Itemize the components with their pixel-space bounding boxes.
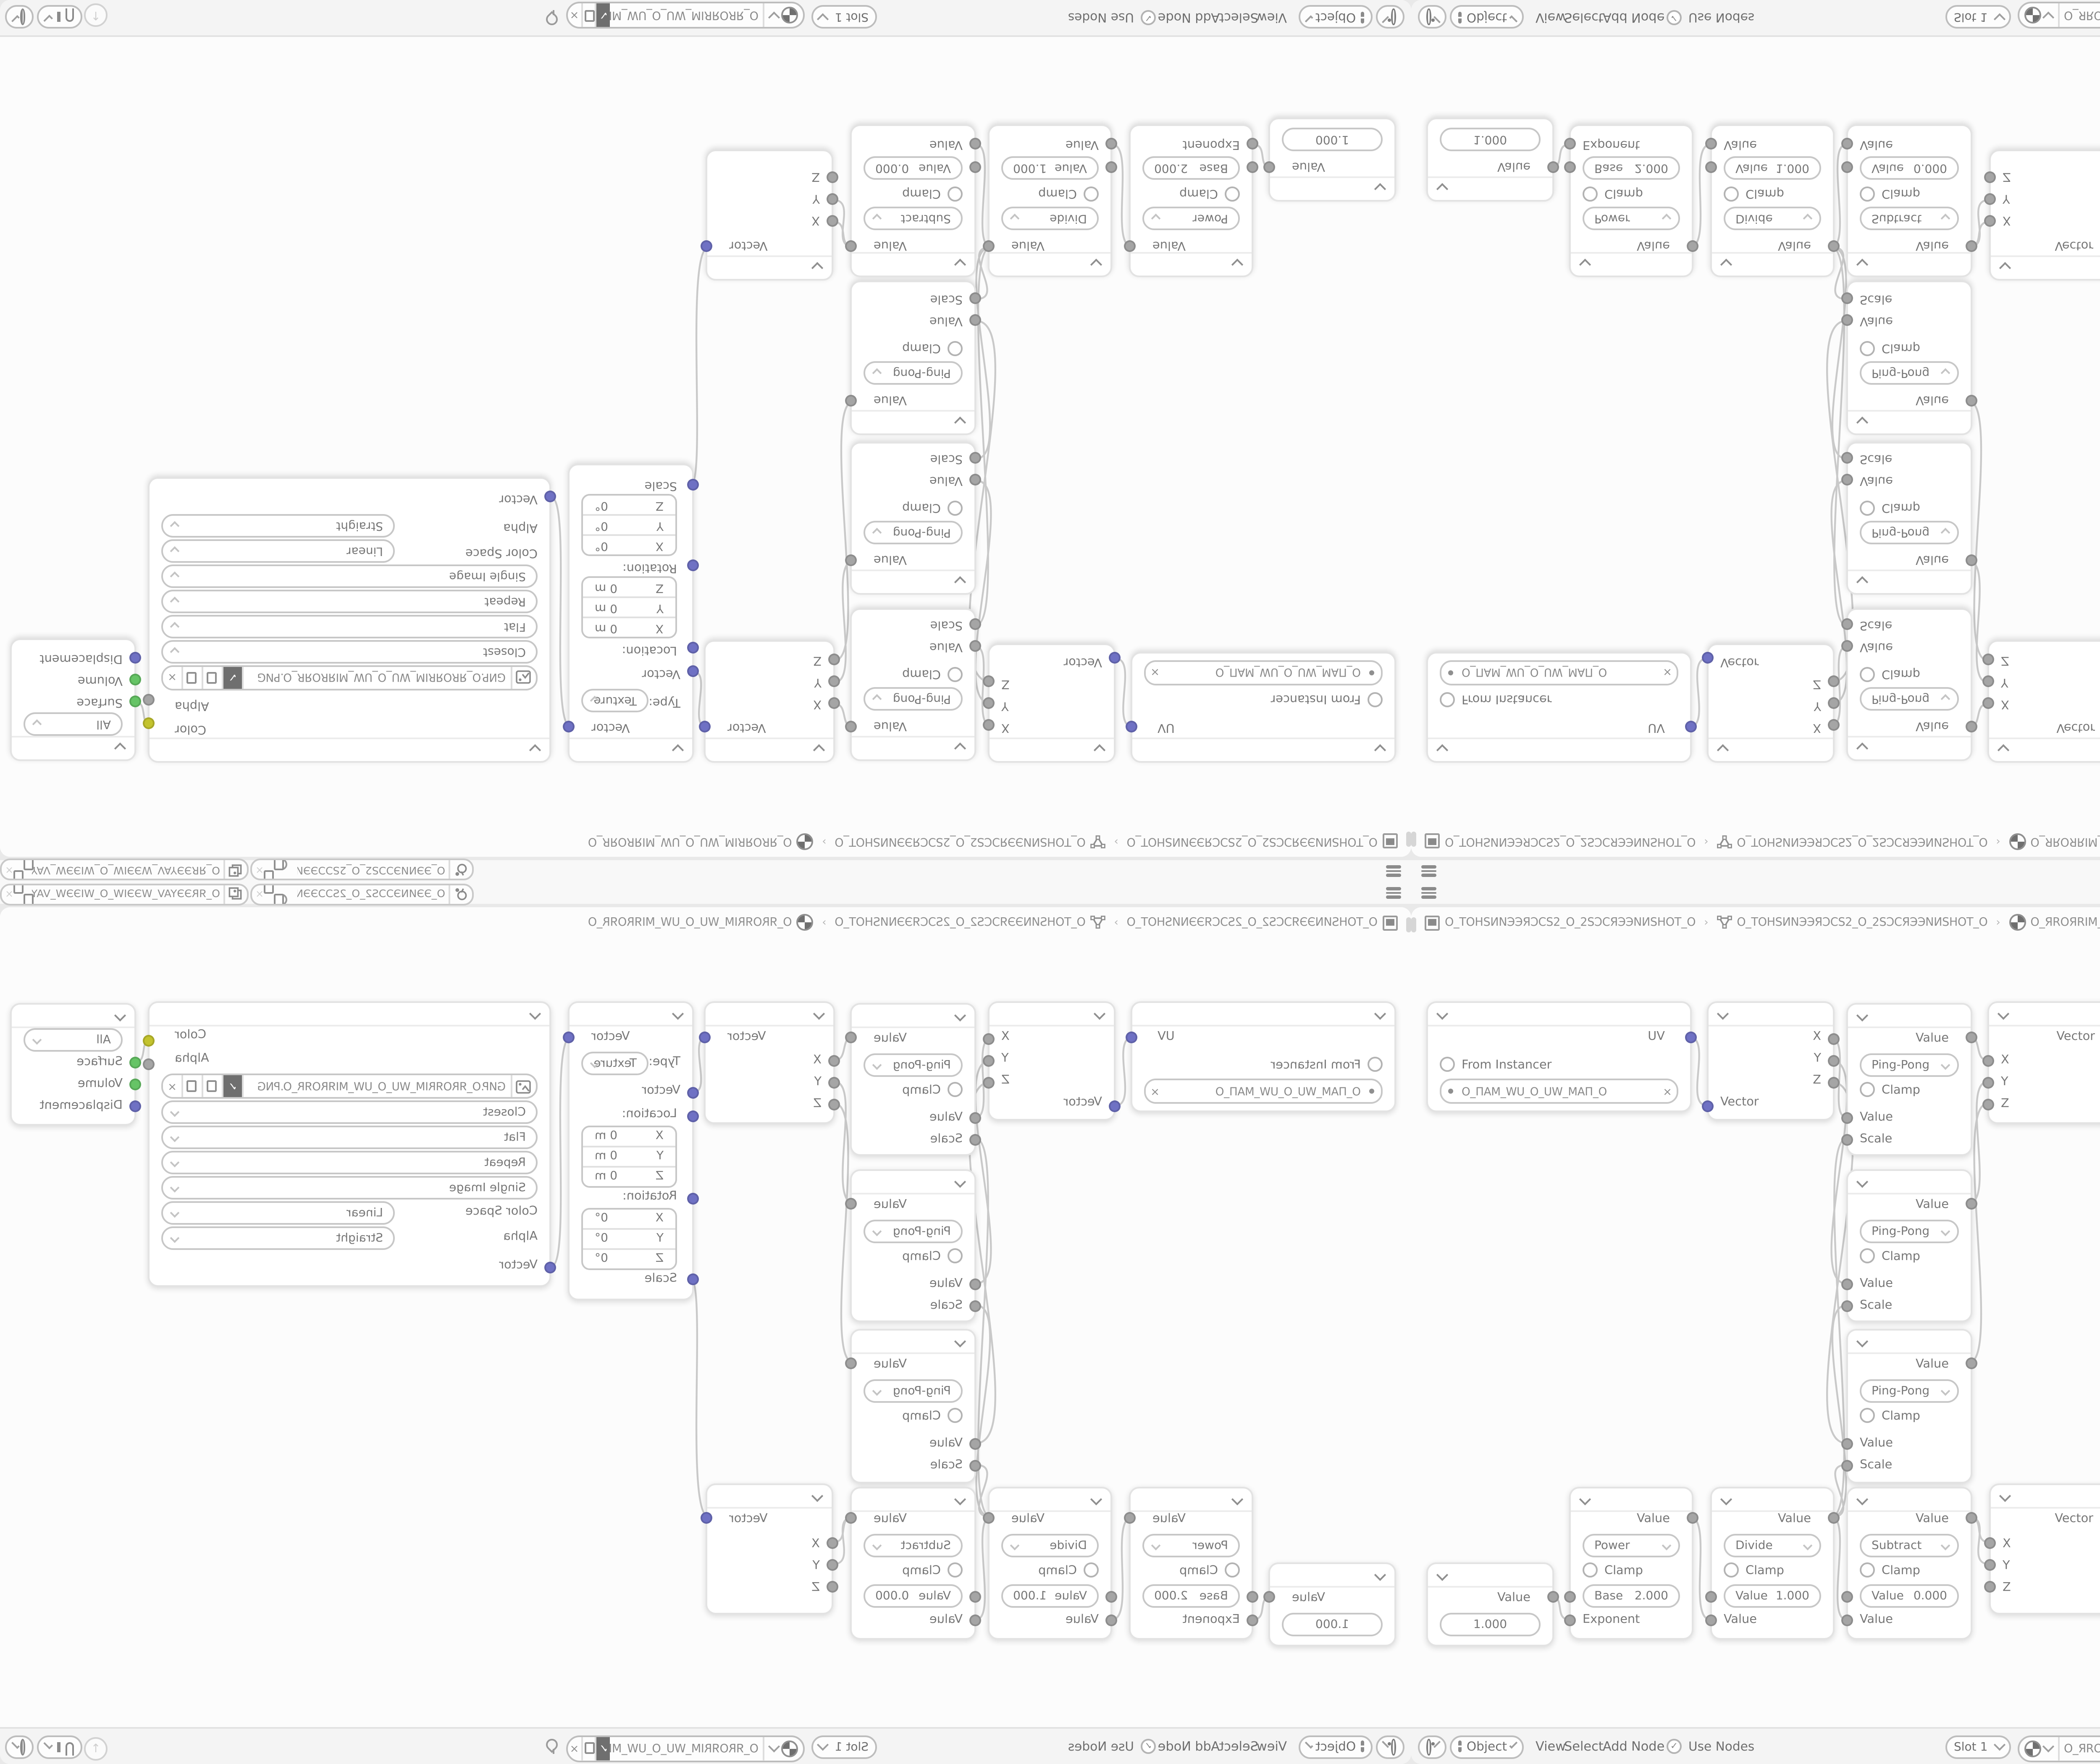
node-image-texture[interactable]: Color Alpha GИP.O_ЯROЯRIM_WU_O_UW_MIЯROЯ… — [148, 477, 551, 763]
socket-value1-in[interactable] — [1842, 1591, 1853, 1603]
unlink-icon[interactable]: × — [163, 1075, 183, 1097]
up-arrow-icon[interactable]: ↑ — [84, 4, 108, 28]
collapse-icon[interactable] — [813, 745, 825, 757]
collapse-icon[interactable] — [1717, 745, 1729, 757]
location-fields[interactable]: X0 m Y0 m Z0 m — [581, 576, 677, 638]
viewlayer-name[interactable]: O_ЯRЭЭYAV_WЭЭIW_O_WIЭЭW_VAYЭЭRЯ_O — [32, 888, 223, 900]
socket-x-in[interactable] — [826, 215, 838, 227]
socket-value-out[interactable] — [1686, 240, 1698, 252]
collapse-icon[interactable] — [811, 263, 823, 275]
socket-value1-in[interactable] — [1105, 161, 1117, 173]
operation-dropdown[interactable]: Power — [1583, 1534, 1680, 1557]
breadcrumb-material[interactable]: O_ЯROЯRIM_WU_O_UW_MIЯROЯR_O — [2030, 835, 2100, 848]
use-nodes-checkbox[interactable]: ✓ Use Nodes — [1667, 8, 1754, 27]
node-separate-xyz[interactable]: X Y Z Vector — [988, 643, 1116, 763]
clamp-checkbox[interactable]: Clamp — [1179, 185, 1240, 203]
location-z-field[interactable]: Z0 m — [583, 578, 675, 598]
remove-icon[interactable]: × — [1658, 1080, 1677, 1102]
collapse-icon[interactable] — [813, 1007, 825, 1019]
node-header[interactable] — [150, 738, 549, 761]
collapse-icon[interactable] — [1717, 1007, 1729, 1019]
socket-z-in[interactable] — [828, 654, 840, 665]
material-browse-button[interactable] — [764, 4, 803, 28]
socket-displacement-in[interactable] — [129, 652, 141, 664]
node-header[interactable] — [852, 1171, 974, 1194]
location-y-field[interactable]: Y0 m — [583, 598, 675, 618]
collapse-icon[interactable] — [1856, 743, 1868, 755]
breadcrumb-object[interactable]: O_TOHSИNЭЭЯƆCS2_O_2SƆCЯЭЭNИSHOT_O — [835, 916, 1086, 929]
socket-value2-in[interactable] — [1105, 138, 1117, 150]
collapse-icon[interactable] — [1231, 1493, 1243, 1504]
value-field[interactable]: Value0.000 — [864, 156, 963, 180]
socket-surface-in[interactable] — [129, 696, 141, 707]
socket-x-out[interactable] — [1827, 719, 1839, 731]
remove-icon[interactable]: × — [1146, 662, 1164, 684]
socket-value-out[interactable] — [1827, 1512, 1839, 1524]
type-dropdown[interactable]: Texture — [581, 689, 648, 712]
menu-view[interactable]: View — [1536, 1735, 1566, 1758]
collapse-icon[interactable] — [1374, 745, 1386, 757]
node-value[interactable]: Value 1.000 — [1426, 118, 1554, 202]
socket-value1-in[interactable] — [1706, 161, 1717, 173]
projection-dropdown[interactable]: Flat — [161, 1126, 538, 1149]
socket-z-in[interactable] — [1983, 654, 1995, 665]
socket-value2-in[interactable] — [1706, 138, 1717, 150]
node-header[interactable] — [852, 736, 974, 759]
operation-dropdown[interactable]: Divide — [1001, 1534, 1099, 1557]
collapse-icon[interactable] — [954, 743, 966, 755]
clamp-checkbox[interactable]: Clamp — [1860, 339, 1920, 358]
viewlayer-selector[interactable]: O_ЯRЭЭYAV_WЭЭIW_O_WIЭЭW_VAYЭЭRЯ_O × — [0, 859, 249, 880]
operation-dropdown[interactable]: Ping-Pong — [864, 1220, 963, 1243]
collapse-icon[interactable] — [1094, 745, 1105, 757]
collapse-icon[interactable] — [1094, 1007, 1105, 1019]
node-combine-xyz-bottom[interactable]: Vector X Y Z — [1989, 150, 2100, 281]
shield-icon[interactable]: ✓ — [223, 1075, 244, 1097]
node-math-pingpong-z[interactable]: Value Ping-Pong Clamp Value Scale — [1846, 281, 1972, 435]
node-header[interactable] — [1428, 1003, 1690, 1026]
socket-value-in[interactable] — [1842, 1112, 1853, 1124]
socket-value-out[interactable] — [1965, 1357, 1977, 1369]
socket-base-in[interactable] — [1246, 1591, 1258, 1603]
clamp-checkbox[interactable]: Clamp — [1583, 1561, 1643, 1579]
socket-value2-in[interactable] — [1842, 138, 1853, 150]
operation-dropdown[interactable]: Ping-Pong — [1860, 1053, 1959, 1077]
material-selector[interactable]: O_ЯROЯRIM_WU_O_UW_MIЯROЯR_O ✓ × — [2018, 1735, 2100, 1761]
socket-value1-in[interactable] — [1842, 161, 1853, 173]
socket-value-out[interactable] — [1965, 1198, 1977, 1210]
socket-vector-out[interactable] — [701, 240, 713, 252]
socket-vector-in[interactable] — [544, 1262, 556, 1273]
socket-value-in[interactable] — [1842, 314, 1853, 326]
snapping-controls[interactable] — [37, 6, 82, 29]
socket-y-in[interactable] — [828, 1077, 840, 1089]
socket-vector-out[interactable] — [699, 721, 711, 732]
socket-value-out[interactable] — [983, 240, 995, 252]
collapse-icon[interactable] — [1999, 263, 2011, 275]
copy-icon[interactable] — [203, 1075, 223, 1097]
node-math-divide[interactable]: Value Divide Clamp Value1.000 Value — [1710, 1487, 1835, 1640]
node-header[interactable] — [1848, 252, 1971, 276]
menu-view[interactable]: View — [1257, 6, 1287, 29]
socket-value2-in[interactable] — [969, 1614, 981, 1626]
extension-dropdown[interactable]: Repeat — [161, 590, 538, 613]
socket-value-out[interactable] — [1965, 554, 1977, 566]
operation-dropdown[interactable]: Subtract — [864, 207, 963, 230]
collapsed-menus-icon[interactable] — [1386, 887, 1401, 899]
collapsed-menus-icon[interactable] — [1421, 865, 1436, 877]
socket-scale-in[interactable] — [687, 1273, 698, 1285]
value-field[interactable]: Value1.000 — [1001, 1584, 1099, 1608]
scrollbar-nub[interactable] — [1407, 917, 1411, 932]
socket-value-out[interactable] — [845, 395, 857, 407]
material-selector[interactable]: O_ЯROЯRIM_WU_O_UW_MIЯROЯR_O ✓ × — [566, 1735, 805, 1761]
socket-z-out[interactable] — [1827, 1077, 1839, 1089]
clamp-checkbox[interactable]: Clamp — [902, 1080, 963, 1099]
node-combine-xyz-top[interactable]: Vector X Y Z — [704, 1001, 835, 1124]
node-combine-xyz-bottom[interactable]: Vector X Y Z — [706, 1483, 833, 1614]
clamp-checkbox[interactable]: Clamp — [1724, 1561, 1784, 1579]
socket-surface-in[interactable] — [129, 1057, 141, 1068]
clamp-checkbox[interactable]: Clamp — [1860, 185, 1920, 203]
node-math-pingpong-y[interactable]: Value Ping-Pong Clamp Value Scale — [1846, 1169, 1972, 1322]
node-material-output[interactable]: All Surface Volume Displacement — [10, 1003, 136, 1126]
rotation-z-field[interactable]: Z0° — [583, 1248, 675, 1268]
socket-value-in[interactable] — [969, 474, 981, 486]
material-selector[interactable]: O_ЯROЯRIM_WU_O_UW_MIЯROЯR_O ✓ × — [2018, 3, 2100, 29]
node-canvas[interactable]: O_TOHSИNЭЭЯƆCS2_O_2SƆCЯЭЭNИSHOT_O › O_TO… — [1411, 35, 2100, 857]
collapse-icon[interactable] — [1999, 1489, 2011, 1501]
scrollbar-nub[interactable] — [1407, 832, 1411, 847]
node-separate-xyz[interactable]: X Y Z Vector — [1707, 643, 1835, 763]
value-field[interactable]: 1.000 — [1440, 128, 1541, 151]
material-browse-button[interactable] — [2019, 4, 2059, 28]
interpolation-dropdown[interactable]: Closest — [161, 640, 538, 664]
from-instancer-checkbox[interactable]: From Instancer — [1271, 690, 1383, 709]
node-combine-xyz-top[interactable]: Vector X Y Z — [1987, 1001, 2100, 1124]
node-header[interactable] — [1848, 410, 1971, 433]
socket-z-out[interactable] — [983, 675, 995, 687]
collapse-icon[interactable] — [1374, 1568, 1386, 1580]
operation-dropdown[interactable]: Ping-Pong — [1860, 361, 1959, 385]
socket-vector-in[interactable] — [1702, 1100, 1714, 1112]
socket-value1-in[interactable] — [969, 161, 981, 173]
collapse-icon[interactable] — [954, 1335, 966, 1347]
menu-node[interactable]: Node — [1158, 1735, 1191, 1758]
material-browse-button[interactable] — [2019, 1736, 2059, 1760]
socket-uv-out[interactable] — [1685, 721, 1696, 732]
socket-value-out[interactable] — [1547, 161, 1559, 173]
uv-map-field[interactable]: O_ПAM_WU_O_UW_MAП_O × — [1440, 660, 1678, 685]
socket-value-out[interactable] — [845, 1357, 857, 1369]
socket-value-out[interactable] — [983, 1512, 995, 1524]
breadcrumb-object[interactable]: O_TOHSИNЭЭЯƆCS2_O_2SƆCЯЭЭNИSHOT_O — [835, 835, 1086, 848]
node-header[interactable] — [1270, 176, 1394, 200]
menu-select[interactable]: Select — [1564, 6, 1604, 29]
socket-value-in[interactable] — [969, 1278, 981, 1290]
scene-name[interactable]: O_ЭЭИNЭƆƆS2_O_2SƆƆЭЭN... — [297, 864, 449, 876]
collapsed-menus-icon[interactable] — [1386, 865, 1401, 877]
value-field[interactable]: Value0.000 — [864, 1584, 963, 1608]
operation-dropdown[interactable]: Ping-Pong — [864, 687, 963, 711]
socket-scale-in[interactable] — [969, 292, 981, 304]
menu-view[interactable]: View — [1257, 1735, 1287, 1758]
socket-scale-in[interactable] — [1842, 452, 1853, 464]
slot-dropdown[interactable]: Slot 1 — [1945, 1735, 2011, 1758]
copy-icon[interactable] — [203, 667, 223, 689]
socket-x-out[interactable] — [983, 1033, 995, 1045]
socket-scale-in[interactable] — [969, 1300, 981, 1312]
clamp-checkbox[interactable]: Clamp — [1860, 1247, 1920, 1265]
socket-scale-in[interactable] — [1842, 1460, 1853, 1472]
socket-displacement-in[interactable] — [129, 1100, 141, 1112]
rotation-fields[interactable]: X0° Y0° Z0° — [581, 1208, 677, 1270]
node-header[interactable] — [1712, 252, 1833, 276]
uv-map-field[interactable]: O_ПAM_WU_O_UW_MAП_O × — [1144, 660, 1383, 685]
node-header[interactable] — [1989, 738, 2100, 761]
socket-alpha-out[interactable] — [143, 1058, 155, 1069]
collapse-icon[interactable] — [1998, 745, 2009, 757]
socket-uv-out[interactable] — [1126, 1032, 1138, 1043]
node-math-pingpong-y[interactable]: Value Ping-Pong Clamp Value Scale — [850, 442, 976, 595]
node-header[interactable] — [990, 738, 1114, 761]
socket-value-in[interactable] — [1842, 1278, 1853, 1290]
socket-vector-out[interactable] — [701, 1512, 713, 1524]
socket-vector-in[interactable] — [687, 665, 698, 677]
operation-dropdown[interactable]: Divide — [1724, 207, 1821, 230]
collapse-icon[interactable] — [529, 1007, 541, 1019]
rotation-x-field[interactable]: X0° — [583, 1210, 675, 1228]
from-instancer-checkbox[interactable]: From Instancer — [1440, 690, 1552, 709]
socket-value-in[interactable] — [969, 1112, 981, 1124]
copy-icon[interactable] — [583, 1736, 597, 1760]
node-header[interactable] — [12, 1005, 134, 1028]
socket-x-in[interactable] — [1983, 1055, 1995, 1067]
collapse-icon[interactable] — [114, 743, 126, 755]
socket-scale-in[interactable] — [1842, 618, 1853, 630]
target-dropdown[interactable]: All — [24, 1028, 123, 1052]
socket-value-out[interactable] — [845, 721, 857, 732]
node-uv-map[interactable]: UV From Instancer O_ПAM_WU_O_UW_MAП_O × — [1131, 1001, 1396, 1112]
node-header[interactable] — [150, 1003, 549, 1026]
rotation-z-field[interactable]: Z0° — [583, 496, 675, 516]
collapse-icon[interactable] — [1436, 184, 1448, 196]
color-space-dropdown[interactable]: Linear — [161, 539, 395, 563]
breadcrumb-object[interactable]: O_TOHSИNЭЭЯƆCS2_O_2SƆCЯЭЭNИSHOT_O — [1737, 916, 1987, 929]
socket-rotation-in[interactable] — [687, 1193, 698, 1205]
collapsed-menus-icon[interactable] — [1421, 887, 1436, 899]
socket-volume-in[interactable] — [129, 1079, 141, 1090]
clamp-checkbox[interactable]: Clamp — [902, 1406, 963, 1425]
slot-dropdown[interactable]: Slot 1 — [811, 1735, 877, 1758]
collapse-icon[interactable] — [1090, 1493, 1102, 1504]
clamp-checkbox[interactable]: Clamp — [1860, 1406, 1920, 1425]
node-header[interactable] — [1709, 738, 1833, 761]
operation-dropdown[interactable]: Divide — [1724, 1534, 1821, 1557]
socket-value-out[interactable] — [1264, 1591, 1276, 1603]
socket-z-in[interactable] — [1984, 1581, 1996, 1593]
value-field[interactable]: Value0.000 — [1860, 1584, 1959, 1608]
socket-value1-in[interactable] — [1105, 1591, 1117, 1603]
collapse-icon[interactable] — [954, 1009, 966, 1021]
clamp-checkbox[interactable]: Clamp — [902, 339, 963, 358]
socket-rotation-in[interactable] — [687, 559, 698, 571]
node-header[interactable] — [12, 736, 134, 759]
collapse-icon[interactable] — [1436, 1568, 1448, 1580]
node-header[interactable] — [1991, 1485, 2100, 1509]
socket-color-out[interactable] — [143, 1034, 155, 1046]
node-header[interactable] — [1571, 252, 1692, 276]
shader-type-dropdown[interactable]: Object — [1299, 1735, 1373, 1758]
extension-dropdown[interactable]: Repeat — [161, 1151, 538, 1174]
editor-type-button[interactable] — [1418, 6, 1446, 29]
use-nodes-checkbox[interactable]: ✓ Use Nodes — [1068, 1737, 1156, 1756]
node-math-pingpong-x[interactable]: Value Ping-Pong Clamp Value Scale — [1846, 1003, 1972, 1156]
node-material-output[interactable]: All Surface Volume Displacement — [10, 638, 136, 761]
socket-value-out[interactable] — [1827, 240, 1839, 252]
menu-add[interactable]: Add — [1195, 1735, 1220, 1758]
operation-dropdown[interactable]: Ping-Pong — [1860, 1220, 1959, 1243]
socket-y-out[interactable] — [1827, 697, 1839, 709]
node-value[interactable]: Value 1.000 — [1268, 1562, 1396, 1646]
rotation-fields[interactable]: X0° Y0° Z0° — [581, 494, 677, 556]
socket-vector-in[interactable] — [1108, 652, 1120, 664]
clamp-checkbox[interactable]: Clamp — [1860, 499, 1920, 517]
socket-y-in[interactable] — [1983, 1077, 1995, 1089]
collapse-icon[interactable] — [529, 745, 541, 757]
collapse-icon[interactable] — [1579, 1493, 1591, 1504]
operation-dropdown[interactable]: Ping-Pong — [1860, 687, 1959, 711]
socket-value2-in[interactable] — [1105, 1614, 1117, 1626]
node-math-pingpong-y[interactable]: Value Ping-Pong Clamp Value Scale — [850, 1169, 976, 1322]
node-canvas[interactable]: O_TOHSИNЭЭЯƆCS2_O_2SƆCЯЭЭNИSHOT_O › O_TO… — [0, 907, 1411, 1729]
clamp-checkbox[interactable]: Clamp — [902, 499, 963, 517]
from-instancer-checkbox[interactable]: From Instancer — [1440, 1055, 1552, 1074]
scene-selector[interactable]: O_ЭЭИNЭƆƆS2_O_2SƆƆЭЭN... × — [250, 884, 474, 905]
breadcrumb-scene[interactable]: O_TOHSИNЭЭЯƆCS2_O_2SƆCЯЭЭNИSHOT_O — [1127, 916, 1378, 929]
node-header[interactable] — [1709, 1003, 1833, 1026]
socket-vector-in[interactable] — [1702, 652, 1714, 664]
socket-value-out[interactable] — [845, 554, 857, 566]
menu-select[interactable]: Select — [1564, 1735, 1604, 1758]
location-x-field[interactable]: X0 m — [583, 1127, 675, 1146]
node-header[interactable] — [852, 1331, 974, 1354]
alpha-dropdown[interactable]: Straight — [161, 1226, 395, 1250]
value-field[interactable]: Value1.000 — [1001, 156, 1099, 180]
clamp-checkbox[interactable]: Clamp — [1860, 665, 1920, 684]
menu-node[interactable]: Node — [1631, 1735, 1664, 1758]
menu-select[interactable]: Select — [1219, 1735, 1258, 1758]
clamp-checkbox[interactable]: Clamp — [902, 665, 963, 684]
breadcrumb-material[interactable]: O_ЯROЯRIM_WU_O_UW_MIЯROЯR_O — [588, 916, 792, 929]
socket-value2-in[interactable] — [969, 138, 981, 150]
target-dropdown[interactable]: All — [24, 712, 123, 736]
projection-dropdown[interactable]: Flat — [161, 615, 538, 638]
scene-selector[interactable]: O_ЭЭИNЭƆƆS2_O_2SƆƆЭЭN... × — [250, 859, 474, 880]
socket-scale-in[interactable] — [1842, 1134, 1853, 1146]
scrollbar-nub[interactable] — [1411, 917, 1415, 932]
collapse-icon[interactable] — [1856, 417, 1868, 429]
socket-vector-in[interactable] — [1108, 1100, 1120, 1112]
node-combine-xyz-bottom[interactable]: Vector X Y Z — [706, 150, 833, 281]
collapse-icon[interactable] — [954, 577, 966, 589]
socket-x-in[interactable] — [826, 1537, 838, 1549]
overlays-button[interactable] — [5, 6, 34, 29]
breadcrumb-material[interactable]: O_ЯROЯRIM_WU_O_UW_MIЯROЯR_O — [2030, 916, 2100, 929]
socket-value-out[interactable] — [1264, 161, 1276, 173]
editor-type-button[interactable] — [1376, 1735, 1404, 1758]
socket-x-out[interactable] — [1827, 1033, 1839, 1045]
node-math-divide[interactable]: Value Divide Clamp Value1.000 Value — [988, 124, 1112, 277]
location-y-field[interactable]: Y0 m — [583, 1146, 675, 1166]
node-value[interactable]: Value 1.000 — [1268, 118, 1396, 202]
socket-value-out[interactable] — [1965, 1512, 1977, 1524]
node-header[interactable] — [1991, 255, 2100, 279]
node-math-pingpong-z[interactable]: Value Ping-Pong Clamp Value Scale — [850, 281, 976, 435]
shader-type-dropdown[interactable]: Object — [1299, 6, 1373, 29]
collapse-icon[interactable] — [954, 417, 966, 429]
node-math-pingpong-x[interactable]: Value Ping-Pong Clamp Value Scale — [850, 1003, 976, 1156]
remove-icon[interactable]: × — [1146, 1080, 1164, 1102]
socket-alpha-out[interactable] — [143, 695, 155, 706]
socket-exponent-in[interactable] — [1564, 1614, 1576, 1626]
node-header[interactable] — [707, 1485, 832, 1509]
socket-value-out[interactable] — [845, 1032, 857, 1043]
material-browse-button[interactable] — [764, 1736, 803, 1760]
node-header[interactable] — [990, 252, 1110, 276]
clamp-checkbox[interactable]: Clamp — [902, 1247, 963, 1265]
node-header[interactable] — [706, 1003, 833, 1026]
socket-scale-in[interactable] — [687, 479, 698, 491]
socket-value-in[interactable] — [1842, 474, 1853, 486]
operation-dropdown[interactable]: Subtract — [1860, 207, 1959, 230]
node-separate-xyz[interactable]: X Y Z Vector — [1707, 1001, 1835, 1121]
menu-add[interactable]: Add — [1603, 1735, 1627, 1758]
node-header[interactable] — [570, 1003, 692, 1026]
operation-dropdown[interactable]: Power — [1142, 1534, 1240, 1557]
node-math-pingpong-x[interactable]: Value Ping-Pong Clamp Value Scale — [1846, 608, 1972, 761]
collapse-icon[interactable] — [954, 260, 966, 271]
collapse-icon[interactable] — [1856, 1175, 1868, 1187]
duplicate-icon[interactable] — [183, 1075, 203, 1097]
clamp-checkbox[interactable]: Clamp — [1860, 1080, 1920, 1099]
clamp-checkbox[interactable]: Clamp — [1724, 185, 1784, 203]
overlays-button[interactable] — [5, 1735, 34, 1758]
node-header[interactable] — [1848, 1331, 1971, 1354]
node-image-texture[interactable]: Color Alpha GИP.O_ЯROЯRIM_WU_O_UW_MIЯROЯ… — [148, 1001, 551, 1287]
operation-dropdown[interactable]: Subtract — [864, 1534, 963, 1557]
node-math-power[interactable]: Value Power Clamp Base2.000 Exponent — [1569, 1487, 1693, 1640]
uv-map-field[interactable]: O_ПAM_WU_O_UW_MAП_O × — [1440, 1079, 1678, 1104]
node-mapping[interactable]: Vector Type: Texture Vector Location: X0… — [568, 464, 694, 763]
uv-map-field[interactable]: O_ПAM_WU_O_UW_MAП_O × — [1144, 1079, 1383, 1104]
node-math-power[interactable]: Value Power Clamp Base2.000 Exponent — [1129, 124, 1253, 277]
socket-x-in[interactable] — [828, 697, 840, 709]
node-header[interactable] — [852, 252, 974, 276]
breadcrumb-material[interactable]: O_ЯROЯRIM_WU_O_UW_MIЯROЯR_O — [588, 835, 792, 848]
collapse-icon[interactable] — [1856, 260, 1868, 271]
operation-dropdown[interactable]: Ping-Pong — [864, 361, 963, 385]
breadcrumb-object[interactable]: O_TOHSИNЭЭЯƆCS2_O_2SƆCЯЭЭNИSHOT_O — [1737, 835, 1987, 848]
node-math-divide[interactable]: Value Divide Clamp Value1.000 Value — [1710, 124, 1835, 277]
socket-x-in[interactable] — [828, 1055, 840, 1067]
collapse-icon[interactable] — [1374, 184, 1386, 196]
node-uv-map[interactable]: UV From Instancer O_ПAM_WU_O_UW_MAП_O × — [1426, 1001, 1692, 1112]
node-header[interactable] — [1428, 1564, 1552, 1588]
socket-y-in[interactable] — [1984, 1559, 1996, 1571]
socket-y-out[interactable] — [983, 697, 995, 709]
value-field[interactable]: 1.000 — [1282, 128, 1383, 151]
